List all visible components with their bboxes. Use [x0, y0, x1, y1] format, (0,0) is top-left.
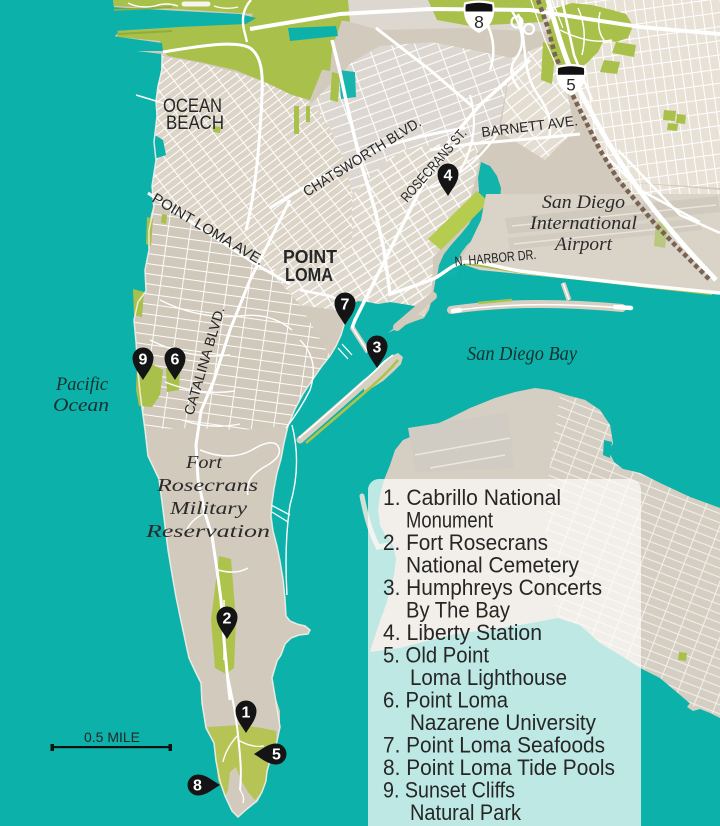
svg-text:6: 6: [171, 352, 180, 369]
svg-text:5: 5: [566, 76, 575, 95]
svg-text:9. Sunset Cliffs: 9. Sunset Cliffs: [383, 778, 515, 803]
svg-text:8. Point Loma Tide Pools: 8. Point Loma Tide Pools: [383, 755, 615, 780]
svg-text:International: International: [529, 213, 637, 234]
svg-text:National Cemetery: National Cemetery: [406, 553, 579, 578]
svg-text:6. Point Loma: 6. Point Loma: [383, 688, 509, 713]
svg-text:5: 5: [272, 747, 281, 764]
svg-text:7. Point Loma Seafoods: 7. Point Loma Seafoods: [383, 733, 605, 758]
svg-text:8: 8: [193, 778, 202, 795]
svg-text:San Diego: San Diego: [542, 192, 625, 213]
svg-text:3. Humphreys Concerts: 3. Humphreys Concerts: [383, 575, 602, 600]
svg-text:4. Liberty Station: 4. Liberty Station: [383, 620, 542, 645]
svg-text:LOMA: LOMA: [285, 265, 333, 285]
svg-text:1. Cabrillo National: 1. Cabrillo National: [383, 485, 561, 510]
svg-text:Pacific: Pacific: [55, 374, 109, 395]
svg-text:Airport: Airport: [553, 234, 613, 255]
svg-text:3: 3: [373, 340, 382, 357]
svg-text:Fort: Fort: [185, 452, 223, 472]
svg-text:Reservation: Reservation: [145, 521, 271, 541]
svg-text:Loma Lighthouse: Loma Lighthouse: [410, 665, 567, 690]
svg-text:9: 9: [139, 352, 148, 369]
svg-text:7: 7: [341, 297, 350, 314]
svg-text:Monument: Monument: [406, 508, 493, 533]
svg-text:Natural Park: Natural Park: [410, 800, 522, 825]
svg-text:8: 8: [474, 12, 484, 32]
svg-text:Rosecrans: Rosecrans: [156, 475, 259, 495]
svg-text:5. Old Point: 5. Old Point: [383, 643, 489, 668]
svg-text:POINT: POINT: [283, 247, 337, 267]
svg-text:2: 2: [223, 611, 232, 628]
svg-text:2. Fort Rosecrans: 2. Fort Rosecrans: [383, 530, 548, 555]
svg-text:1: 1: [242, 705, 251, 722]
svg-text:Nazarene University: Nazarene University: [410, 710, 596, 735]
svg-text:San Diego Bay: San Diego Bay: [467, 343, 577, 365]
svg-text:0.5 MILE: 0.5 MILE: [84, 729, 140, 745]
svg-text:Military: Military: [169, 498, 248, 518]
svg-text:Ocean: Ocean: [53, 395, 109, 416]
svg-text:BEACH: BEACH: [166, 113, 224, 134]
svg-text:By The Bay: By The Bay: [406, 598, 510, 623]
svg-text:4: 4: [444, 168, 453, 185]
